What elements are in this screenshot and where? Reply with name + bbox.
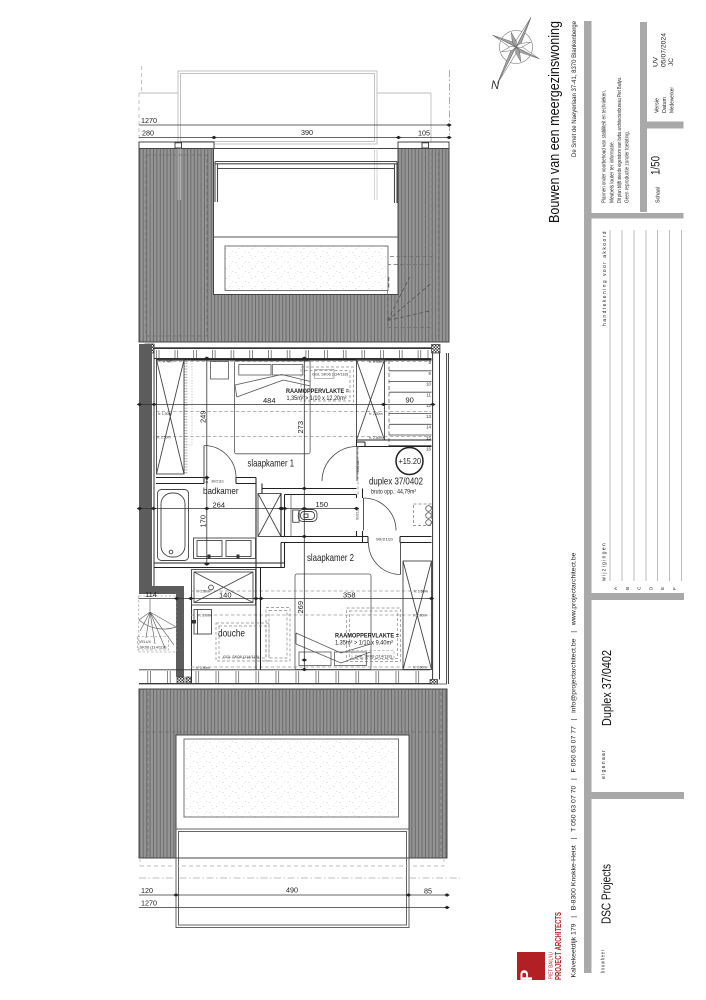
- svg-text:90: 90: [406, 396, 414, 405]
- svg-text:Schaal: Schaal: [656, 187, 662, 203]
- svg-text:h: 0.90m: h: 0.90m: [369, 359, 383, 364]
- svg-text:273: 273: [296, 421, 305, 434]
- svg-text:N: N: [491, 80, 500, 92]
- svg-text:249: 249: [199, 410, 208, 423]
- svg-text:80/211b: 80/211b: [356, 460, 360, 472]
- svg-text:114: 114: [145, 590, 157, 599]
- svg-text:GGL SK06 (114/118): GGL SK06 (114/118): [312, 372, 349, 376]
- svg-text:150: 150: [316, 500, 329, 509]
- svg-text:D: D: [649, 586, 654, 590]
- svg-text:P: P: [517, 970, 536, 981]
- svg-text:h: 2.00m: h: 2.00m: [413, 613, 427, 618]
- svg-text:RAAMOPPERVLAKTE =: RAAMOPPERVLAKTE =: [335, 633, 399, 640]
- svg-text:484: 484: [263, 396, 276, 405]
- svg-text:Duplex 37/0402: Duplex 37/0402: [599, 650, 614, 726]
- svg-text:De Smet de Naeyerlaan 37-41, 8: De Smet de Naeyerlaan 37-41, 8370 Blanke…: [571, 21, 578, 157]
- svg-text:h: 2,00m: h: 2,00m: [369, 411, 383, 416]
- svg-text:h: 0.90m: h: 0.90m: [196, 665, 210, 670]
- svg-text:Kalvekeetdijk 179 | B-8300: Kalvekeetdijk 179 | B-8300 Knokke-Heist …: [571, 552, 578, 977]
- svg-text:1,35m² > 1/10 x 9,40m²: 1,35m² > 1/10 x 9,40m²: [335, 640, 393, 647]
- svg-text:80/211b: 80/211b: [212, 480, 224, 484]
- svg-text:13: 13: [426, 414, 431, 419]
- svg-text:120: 120: [141, 886, 153, 895]
- svg-text:h: 0.90m: h: 0.90m: [413, 665, 427, 670]
- svg-text:bruto opp.: 44,79m²: bruto opp.: 44,79m²: [371, 489, 416, 495]
- svg-text:slaapkamer 1: slaapkamer 1: [248, 459, 295, 470]
- svg-text:A: A: [613, 586, 618, 590]
- svg-text:h: 2.50m: h: 2.50m: [157, 435, 171, 440]
- svg-text:14: 14: [426, 425, 431, 430]
- svg-text:1,35m² > 1/10 x 12,20m²: 1,35m² > 1/10 x 12,20m²: [287, 395, 348, 402]
- svg-text:bouwheer: bouwheer: [601, 949, 607, 973]
- svg-text:1270: 1270: [141, 899, 157, 908]
- svg-text:1/50: 1/50: [651, 156, 663, 175]
- svg-text:duplex 37/0402: duplex 37/0402: [369, 476, 423, 487]
- svg-text:DSC Projects: DSC Projects: [599, 864, 614, 924]
- svg-text:8: 8: [429, 360, 432, 365]
- svg-text:eigenaar: eigenaar: [601, 749, 607, 779]
- svg-text:wijzigingen: wijzigingen: [602, 542, 608, 581]
- svg-text:358: 358: [343, 590, 356, 599]
- svg-text:10: 10: [426, 382, 431, 387]
- svg-text:SK06 (114/118): SK06 (114/118): [140, 645, 168, 650]
- svg-text:105: 105: [418, 129, 430, 138]
- svg-text:RAAMOPPERVLAKTE =: RAAMOPPERVLAKTE =: [286, 388, 349, 395]
- svg-text:F: F: [672, 587, 677, 590]
- svg-text:handtekening voor akkoord: handtekening voor akkoord: [602, 230, 608, 326]
- svg-text:269: 269: [296, 601, 305, 614]
- svg-text:GGL SK06 (114/118): GGL SK06 (114/118): [223, 655, 260, 659]
- svg-text:Meubels louter ter informatie.: Meubels louter ter informatie.: [610, 141, 616, 203]
- svg-text:280: 280: [142, 129, 154, 138]
- svg-text:h: 2.00m: h: 2.00m: [199, 613, 213, 618]
- svg-text:Bouwen van een meergezinswonin: Bouwen van een meergezinswoning: [547, 21, 563, 223]
- svg-text:GGL SK06 (114/118): GGL SK06 (114/118): [355, 654, 393, 658]
- svg-text:h: 2.50m: h: 2.50m: [197, 589, 211, 594]
- svg-text:12: 12: [426, 403, 431, 408]
- svg-text:Plannen onder voorbehoud van s: Plannen onder voorbehoud van stabiliteit…: [602, 90, 608, 203]
- svg-text:h: 1.00m: h: 1.00m: [158, 411, 172, 416]
- svg-text:05/07/2024: 05/07/2024: [661, 33, 668, 67]
- svg-text:9: 9: [429, 371, 432, 376]
- svg-text:264: 264: [213, 500, 226, 509]
- svg-text:Datum: Datum: [662, 97, 668, 113]
- svg-text:1270: 1270: [141, 116, 157, 125]
- svg-text:h: 0.48m: h: 0.48m: [159, 359, 173, 364]
- svg-text:85: 85: [424, 887, 432, 896]
- svg-text:Versie: Versie: [655, 98, 661, 113]
- svg-text:UV: UV: [653, 56, 660, 67]
- svg-text:JC: JC: [668, 58, 675, 66]
- svg-text:170: 170: [199, 515, 208, 528]
- svg-text:390: 390: [301, 128, 313, 137]
- svg-text:PROJECT ARCHITECTS: PROJECT ARCHITECTS: [553, 912, 563, 980]
- svg-text:douche: douche: [218, 628, 245, 639]
- svg-text:90/211b: 90/211b: [376, 538, 393, 542]
- svg-text:16: 16: [426, 447, 431, 452]
- svg-text:C: C: [637, 586, 642, 590]
- svg-text:badkamer: badkamer: [203, 486, 239, 497]
- svg-text:Dit plan blijft steeds eigendo: Dit plan blijft steeds eigendom van bvba…: [617, 77, 623, 203]
- svg-text:140: 140: [219, 590, 232, 599]
- svg-text:h: 2.50m: h: 2.50m: [369, 435, 383, 440]
- svg-text:+15.20: +15.20: [399, 457, 422, 466]
- svg-text:E: E: [660, 587, 665, 590]
- svg-text:B: B: [625, 587, 630, 590]
- svg-text:h: 1.50m: h: 1.50m: [414, 589, 428, 594]
- svg-text:Medewerker: Medewerker: [670, 87, 676, 113]
- svg-text:Geen reproductie zonder toelat: Geen reproductie zonder toelating.: [625, 131, 631, 203]
- svg-text:11: 11: [426, 393, 431, 398]
- svg-text:490: 490: [286, 886, 298, 895]
- svg-text:VELUX: VELUX: [139, 639, 151, 644]
- svg-text:slaapkamer 2: slaapkamer 2: [307, 553, 354, 564]
